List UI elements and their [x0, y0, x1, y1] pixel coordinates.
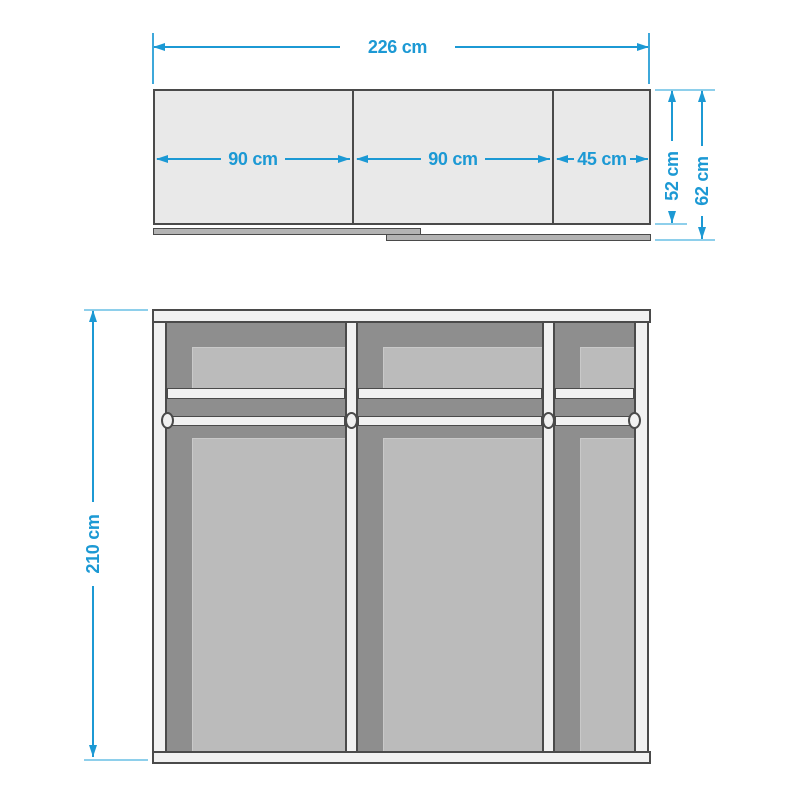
arrow-right: [538, 155, 550, 163]
depth-body-label: 52 cm: [662, 141, 682, 211]
compartment-3-hanging-rail: [555, 416, 634, 426]
extension-line-left: [152, 33, 154, 84]
arrow-down: [668, 211, 676, 223]
arrow-left: [556, 155, 568, 163]
rail-cap: [542, 412, 555, 429]
door-3-width-label: 45 cm: [574, 149, 630, 169]
door-1-width-label: 90 cm: [221, 149, 285, 169]
wardrobe-dimension-diagram: 226 cm 90 cm 90 cm 45 cm 52 cm 62 cm: [0, 0, 800, 800]
door-divider-2: [552, 91, 554, 223]
sliding-track-lower: [386, 234, 651, 241]
compartment-1: [167, 323, 345, 751]
total-width-label: 226 cm: [340, 37, 455, 57]
wardrobe-left-side-panel: [152, 323, 167, 751]
height-label: 210 cm: [83, 502, 103, 586]
arrow-down: [89, 745, 97, 757]
tick-depth-overall-bottom: [655, 239, 715, 241]
arrow-up: [668, 90, 676, 102]
compartment-1-lower-back-panel: [192, 438, 345, 751]
arrow-down: [698, 227, 706, 239]
compartment-2-hanging-rail: [358, 416, 542, 426]
tick-depth-top: [655, 89, 715, 91]
center-partition-2: [542, 323, 555, 751]
door-divider-1: [352, 91, 354, 223]
depth-overall-label: 62 cm: [692, 146, 712, 216]
center-partition-1: [345, 323, 358, 751]
compartment-2: [358, 323, 542, 751]
extension-line-right: [648, 33, 650, 84]
rail-cap: [161, 412, 174, 429]
compartment-3-shelf: [555, 388, 634, 399]
compartment-2-lower-back-panel: [383, 438, 542, 751]
compartment-1-hanging-rail: [167, 416, 345, 426]
arrow-right: [338, 155, 350, 163]
arrow-left: [356, 155, 368, 163]
compartment-1-upper-back-panel: [192, 347, 345, 389]
tick-height-bottom: [84, 759, 148, 761]
sliding-track-upper: [153, 228, 421, 235]
rail-cap: [628, 412, 641, 429]
arrow-up: [698, 90, 706, 102]
arrow-up: [89, 310, 97, 322]
compartment-3-lower-back-panel: [580, 438, 634, 751]
wardrobe-base-panel: [152, 751, 651, 764]
arrow-left: [156, 155, 168, 163]
arrow-right: [636, 155, 648, 163]
rail-cap: [345, 412, 358, 429]
compartment-1-shelf: [167, 388, 345, 399]
top-view: 226 cm 90 cm 90 cm 45 cm 52 cm 62 cm: [0, 0, 800, 260]
wardrobe-right-side-panel: [634, 323, 649, 751]
arrow-right: [637, 43, 649, 51]
compartment-2-shelf: [358, 388, 542, 399]
compartment-2-upper-back-panel: [383, 347, 542, 389]
front-view: 210 cm: [0, 260, 800, 800]
tick-depth-body-bottom: [655, 223, 687, 225]
wardrobe-top-panel: [152, 309, 651, 323]
compartment-3-upper-back-panel: [580, 347, 634, 389]
arrow-left: [153, 43, 165, 51]
compartment-3: [555, 323, 634, 751]
door-2-width-label: 90 cm: [421, 149, 485, 169]
